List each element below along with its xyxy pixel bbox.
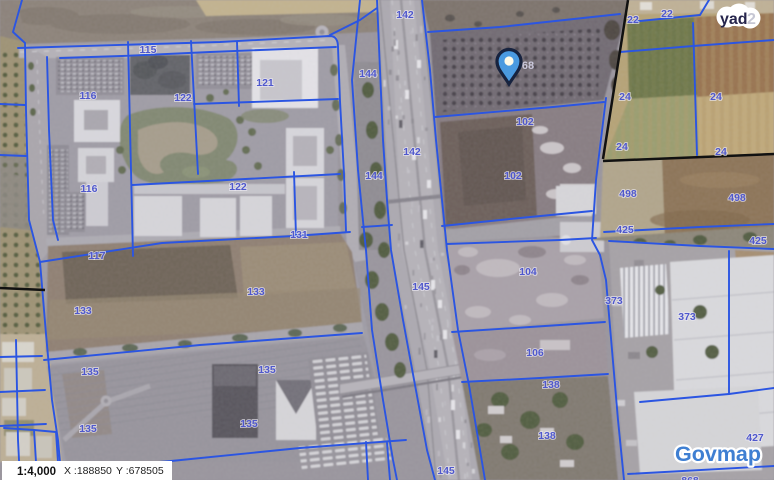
svg-text:116: 116 bbox=[81, 183, 98, 195]
svg-text:373: 373 bbox=[678, 311, 696, 323]
svg-text:2: 2 bbox=[747, 11, 756, 28]
svg-text:142: 142 bbox=[396, 9, 414, 21]
svg-text:373: 373 bbox=[605, 295, 623, 307]
svg-text:138: 138 bbox=[542, 379, 560, 391]
svg-text:122: 122 bbox=[174, 92, 192, 104]
svg-text:122: 122 bbox=[229, 181, 247, 193]
svg-text:133: 133 bbox=[74, 305, 92, 317]
svg-text:22: 22 bbox=[661, 8, 673, 20]
svg-text:142: 142 bbox=[403, 146, 421, 158]
svg-text:135: 135 bbox=[81, 366, 99, 378]
svg-text:1:4,000: 1:4,000 bbox=[17, 466, 56, 478]
svg-text:135: 135 bbox=[258, 364, 276, 376]
svg-text:117: 117 bbox=[89, 250, 106, 262]
svg-text:X :188850: X :188850 bbox=[64, 465, 112, 477]
svg-text:144: 144 bbox=[359, 68, 377, 80]
svg-text:68: 68 bbox=[522, 60, 534, 72]
svg-text:104: 104 bbox=[519, 266, 537, 278]
svg-text:102: 102 bbox=[504, 170, 522, 182]
svg-text:425: 425 bbox=[749, 235, 767, 247]
svg-text:138: 138 bbox=[538, 430, 556, 442]
svg-text:106: 106 bbox=[526, 347, 544, 359]
svg-text:498: 498 bbox=[728, 192, 746, 204]
svg-text:144: 144 bbox=[365, 170, 383, 182]
svg-text:121: 121 bbox=[256, 77, 274, 89]
svg-text:135: 135 bbox=[240, 418, 258, 430]
svg-text:yad: yad bbox=[720, 11, 748, 28]
svg-text:145: 145 bbox=[437, 465, 455, 477]
svg-text:102: 102 bbox=[516, 116, 534, 128]
svg-text:22: 22 bbox=[627, 14, 639, 26]
svg-text:133: 133 bbox=[247, 286, 265, 298]
svg-text:24: 24 bbox=[715, 146, 727, 158]
svg-text:115: 115 bbox=[140, 44, 157, 56]
svg-text:131: 131 bbox=[290, 229, 308, 241]
svg-text:Y :678505: Y :678505 bbox=[116, 465, 164, 477]
svg-text:Govmap: Govmap bbox=[675, 442, 761, 466]
svg-text:24: 24 bbox=[619, 91, 631, 103]
svg-text:868: 868 bbox=[681, 475, 699, 480]
svg-text:24: 24 bbox=[616, 141, 628, 153]
svg-text:425: 425 bbox=[616, 224, 634, 236]
svg-text:135: 135 bbox=[79, 423, 97, 435]
svg-text:116: 116 bbox=[80, 90, 97, 102]
svg-text:145: 145 bbox=[412, 281, 430, 293]
svg-text:498: 498 bbox=[619, 188, 637, 200]
svg-text:24: 24 bbox=[710, 91, 722, 103]
